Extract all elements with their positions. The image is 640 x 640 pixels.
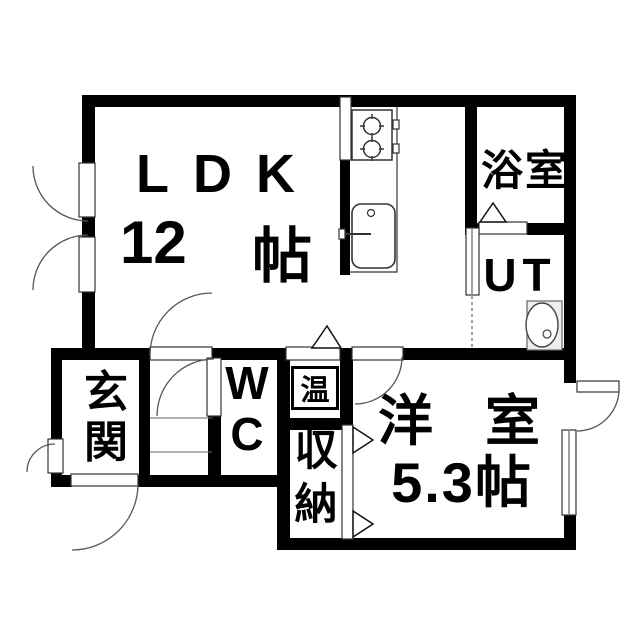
utility-fixtures <box>526 301 562 350</box>
closet-door-icon <box>342 425 353 539</box>
entrance-door-swing-icon <box>72 484 138 550</box>
floor-plan-drawing <box>0 0 640 640</box>
western-room-area-label: 5.3帖 <box>368 438 556 519</box>
faucet-base-icon <box>339 229 345 239</box>
western-room-outer-door-leaf-icon <box>577 381 619 392</box>
wc-door-swing-icon <box>157 359 214 416</box>
utility-label: UT <box>470 248 570 302</box>
kitchen-edge-strip <box>340 97 351 160</box>
ldk-window-leaf-icon <box>79 237 95 292</box>
entrance-door-leaf-icon <box>71 474 138 486</box>
western-room-door-leaf-icon <box>352 347 403 360</box>
heater-door-triangle-icon <box>312 326 341 348</box>
stove-knob-icon <box>393 120 399 129</box>
water-heater-label: 温 <box>291 366 339 410</box>
ldk-window-leaf-icon <box>79 163 95 217</box>
bath-door-opening-icon <box>479 222 527 234</box>
sink-icon <box>352 204 395 268</box>
wc-door-leaf-icon <box>207 358 221 416</box>
ldk-area-value: 12 <box>120 208 187 295</box>
entrance-label: 玄 関 <box>81 368 131 468</box>
hall-door-swing-icon <box>150 293 212 355</box>
floor-plan: LDK 12 帖 浴室 UT 玄 関 W C 温 収 納 洋 室 5.3帖 <box>0 0 640 640</box>
stove-knob-icon <box>393 144 399 153</box>
heater-door-opening-icon <box>286 347 340 360</box>
wc-label: W C <box>222 358 272 460</box>
ldk-area-unit: 帖 <box>252 208 312 295</box>
ldk-area-label: 12 帖 <box>120 208 312 295</box>
bath-door-triangle-icon <box>480 203 506 222</box>
ldk-room-label: LDK <box>112 143 318 205</box>
basin-icon <box>526 303 558 347</box>
bathroom-label: 浴室 <box>473 137 577 198</box>
hall-door-leaf-icon <box>150 347 212 360</box>
storage-label: 収 納 <box>291 424 341 532</box>
basin-drain-icon <box>543 330 551 338</box>
western-room-outer-door-swing-icon <box>577 390 619 431</box>
